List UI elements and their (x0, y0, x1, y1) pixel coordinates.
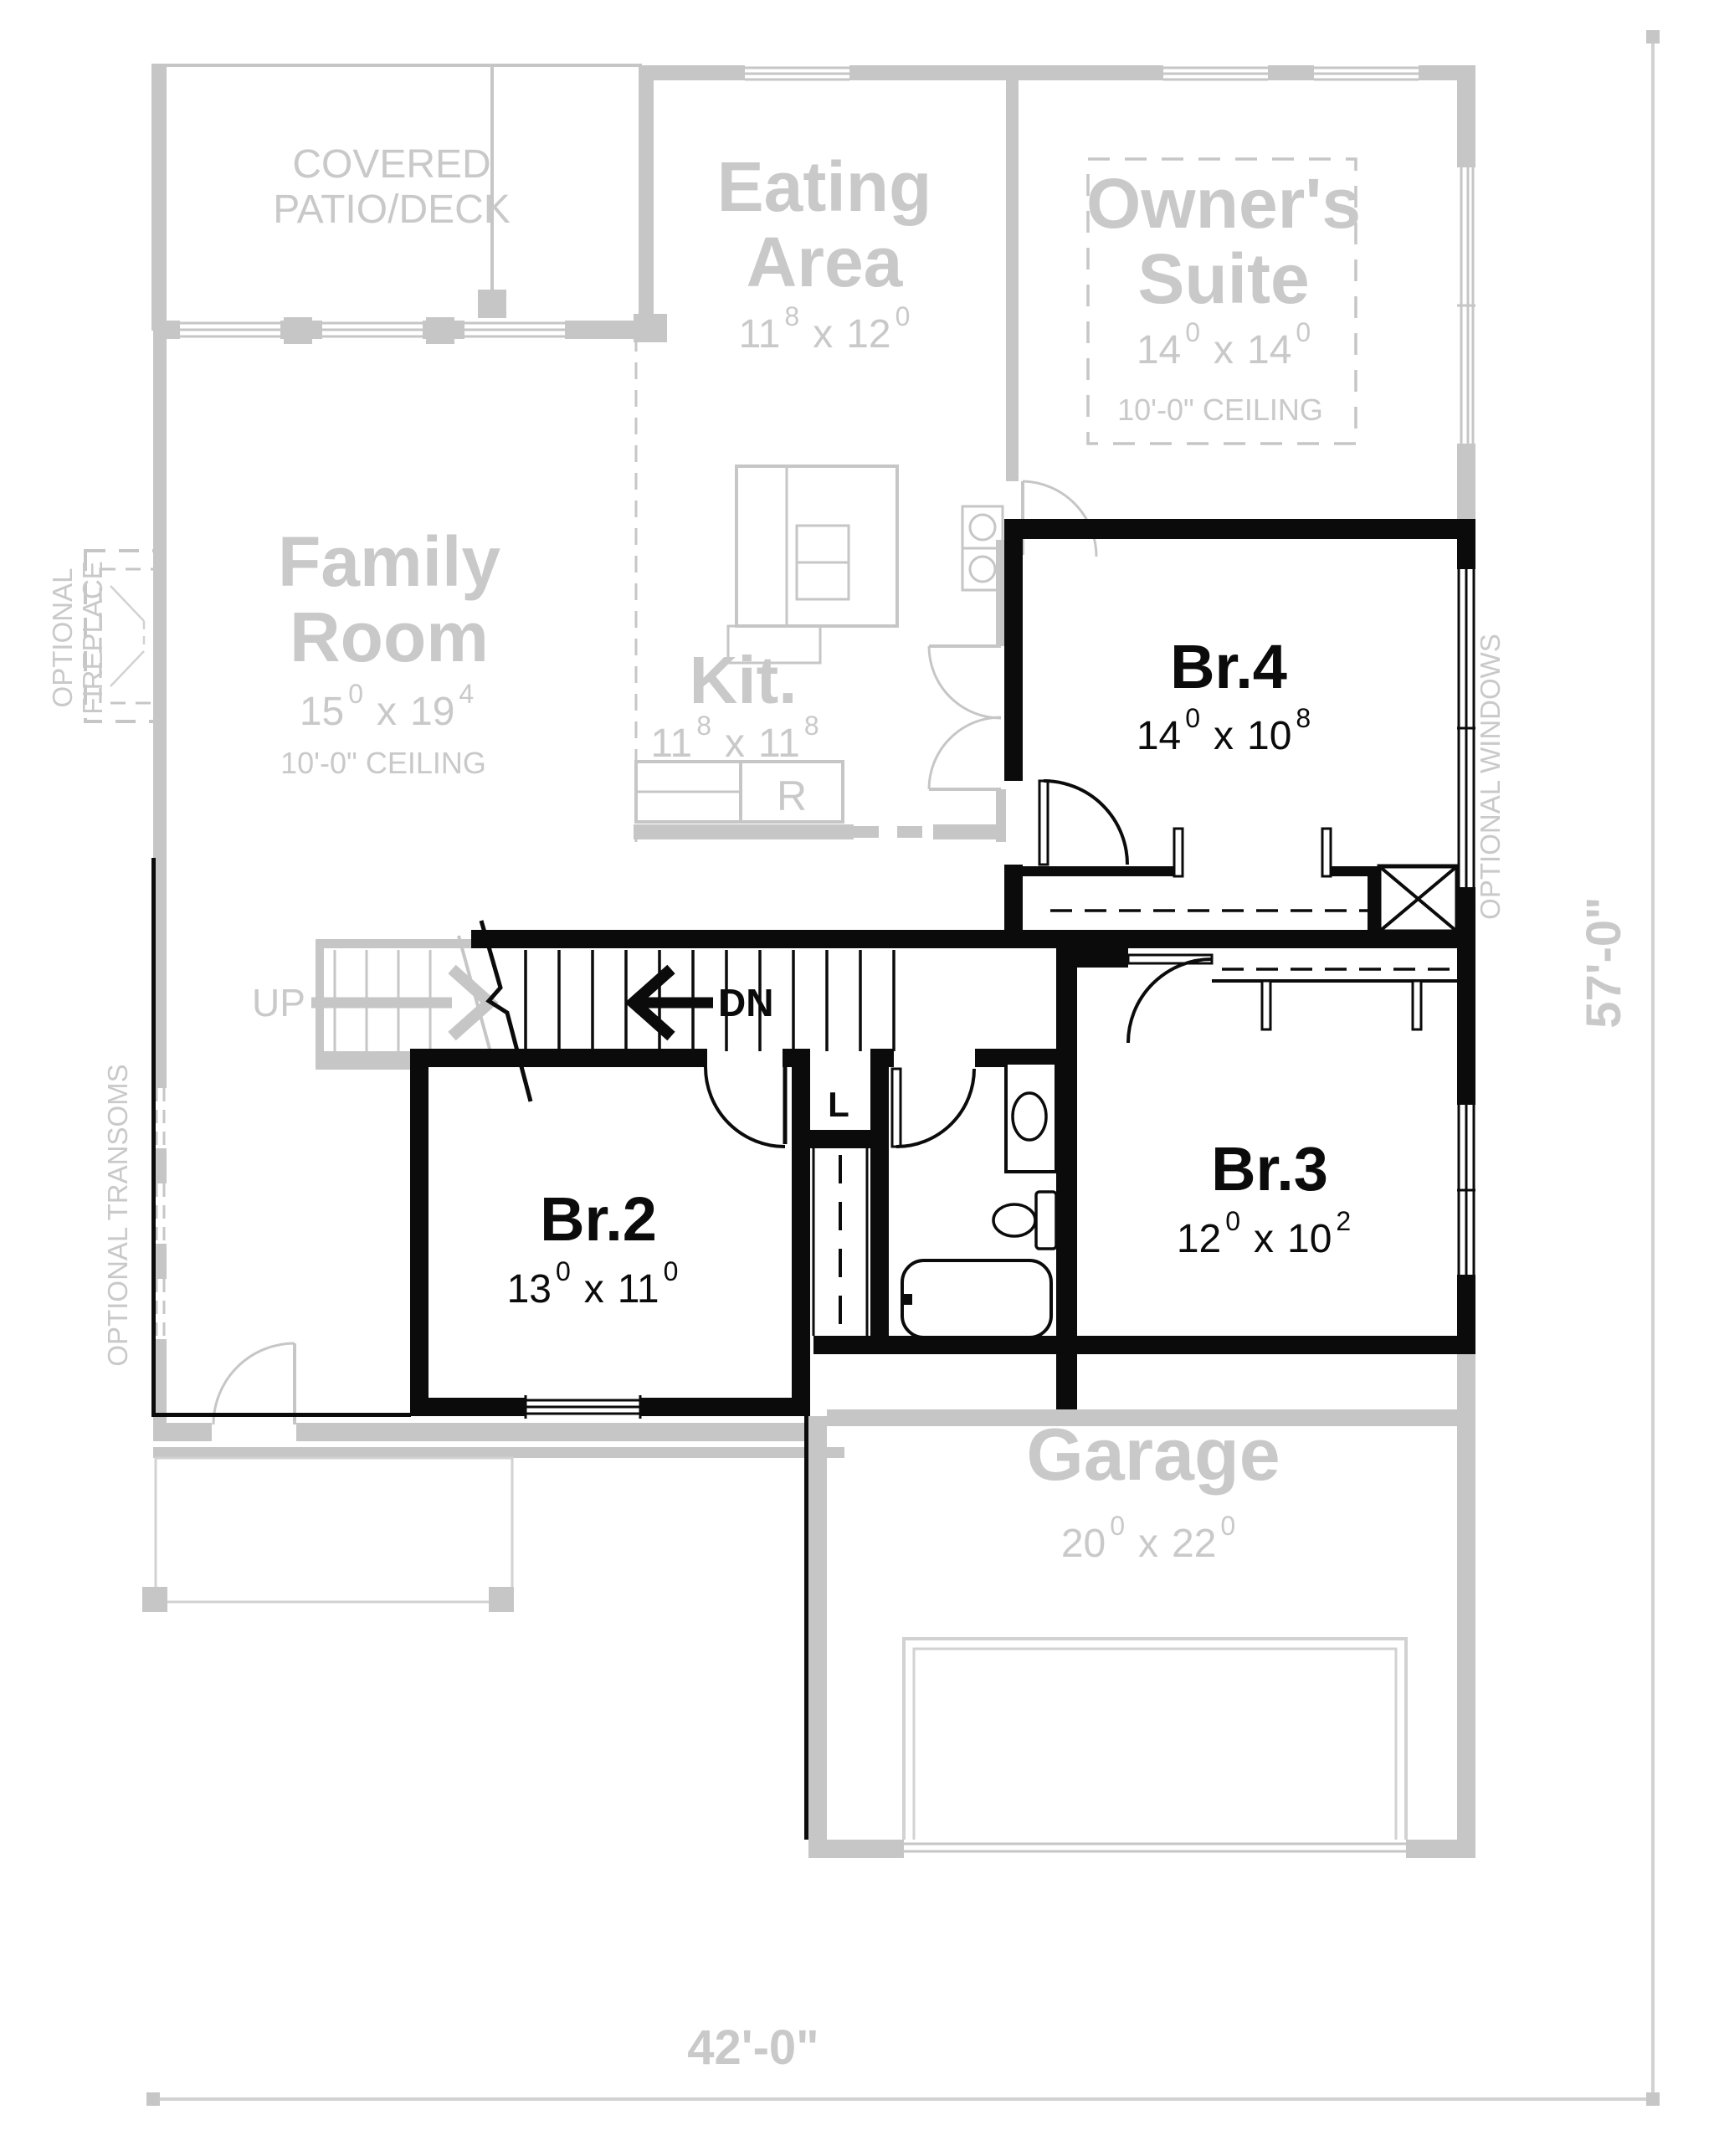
owners-suite-wall (1006, 65, 1019, 481)
br3-closet (1212, 969, 1457, 1029)
svg-text:Room: Room (290, 598, 489, 676)
br2-door (706, 1067, 785, 1147)
second-floor-labels: Br.4 140x108 Br.2 130x110 Br.3 120x102 (507, 632, 1352, 1312)
hall-north-wall (471, 930, 1475, 948)
linen-label: L (828, 1085, 849, 1124)
kitchen-island (728, 466, 897, 663)
porch (142, 1447, 844, 1612)
kitchen-label: Kit. (690, 643, 798, 717)
eating-area-size: 118x120 (739, 301, 911, 357)
owners-suite-label: Owner's (1086, 164, 1361, 243)
patio-label2: PATIO/DECK (273, 187, 511, 232)
front-wall (153, 1420, 827, 1444)
optional-fireplace-label: OPTIONAL (47, 568, 78, 708)
dn-label: DN (718, 981, 773, 1024)
kitchen-size: 118x118 (650, 711, 819, 766)
garage-size: 200x220 (1061, 1511, 1235, 1566)
br3-size: 120x102 (1177, 1206, 1351, 1261)
sink-icon (1013, 1093, 1046, 1140)
owners-suite-ceiling: 10'-0" CEILING (1117, 393, 1323, 427)
br4-closet (1023, 829, 1379, 933)
french-doors (929, 540, 1006, 842)
br4-window (1454, 569, 1479, 887)
family-room-ceiling: 10'-0" CEILING (280, 746, 486, 780)
br2-window (526, 1395, 640, 1419)
floor-plan-page: R (0, 0, 1714, 2156)
front-door (213, 1343, 295, 1424)
optional-transoms-label: OPTIONAL TRANSOMS (102, 1064, 133, 1366)
owners-suite-size: 140x140 (1137, 317, 1311, 372)
height-dimension-label: 57'-0" (1577, 896, 1631, 1028)
up-label: UP (252, 981, 305, 1024)
family-room-size: 150x194 (300, 679, 474, 734)
dn-arrow-icon (634, 969, 713, 1036)
floor-plan-drawing: R (0, 0, 1714, 2156)
kitchen-south-wall (634, 824, 854, 839)
x-box-chase-icon (1379, 866, 1457, 932)
bathtub-icon (901, 1260, 1051, 1337)
toilet-icon (993, 1192, 1056, 1249)
svg-text:Suite: Suite (1137, 239, 1309, 318)
garage-door (904, 1639, 1406, 1840)
br3-label: Br.3 (1211, 1134, 1328, 1204)
family-room-label: Family (278, 522, 500, 601)
br4-label: Br.4 (1170, 632, 1287, 701)
bathroom-vanity (1006, 1063, 1056, 1172)
fridge-label: R (777, 773, 807, 819)
eating-area-label: Eating (717, 147, 932, 226)
svg-text:Area: Area (747, 223, 904, 301)
kitchen-counter: R (636, 762, 843, 822)
owners-suite-window (1455, 167, 1477, 444)
br2-label: Br.2 (540, 1184, 657, 1254)
width-dimension-label: 42'-0" (687, 2020, 819, 2075)
patio-label: COVERED (292, 142, 490, 187)
optional-windows-label: OPTIONAL WINDOWS (1475, 634, 1506, 920)
bath-door (892, 1069, 974, 1147)
garage-label: Garage (1026, 1413, 1280, 1496)
br4-size: 140x108 (1137, 703, 1311, 758)
up-arrow-icon (311, 969, 490, 1036)
br2-size: 130x110 (507, 1256, 679, 1312)
br4-door (1039, 781, 1127, 865)
br3-window (1454, 1105, 1479, 1275)
svg-text:FIREPLACE: FIREPLACE (77, 561, 108, 714)
